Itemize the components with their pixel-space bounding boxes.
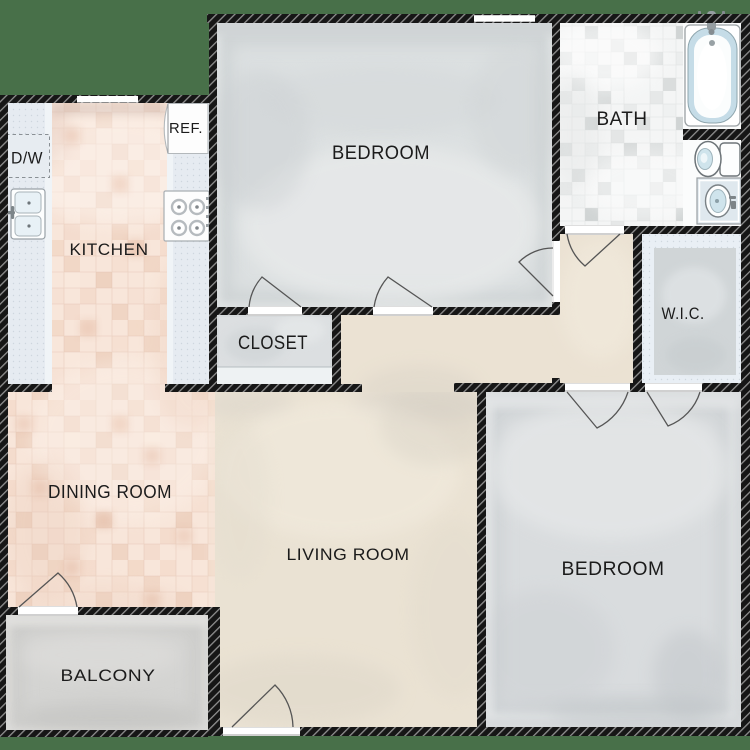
svg-text:BEDROOM: BEDROOM (332, 143, 430, 164)
svg-text:BEDROOM: BEDROOM (562, 559, 665, 580)
svg-text:KITCHEN: KITCHEN (70, 240, 149, 259)
svg-text:CLOSET: CLOSET (238, 333, 308, 354)
svg-text:LIVING ROOM: LIVING ROOM (287, 545, 410, 564)
svg-text:BALCONY: BALCONY (61, 666, 156, 685)
svg-text:W.I.C.: W.I.C. (662, 304, 705, 323)
svg-text:D/W: D/W (11, 149, 43, 168)
svg-text:REF.: REF. (169, 120, 203, 137)
svg-text:BATH: BATH (597, 109, 648, 130)
svg-text:DINING ROOM: DINING ROOM (48, 482, 172, 502)
